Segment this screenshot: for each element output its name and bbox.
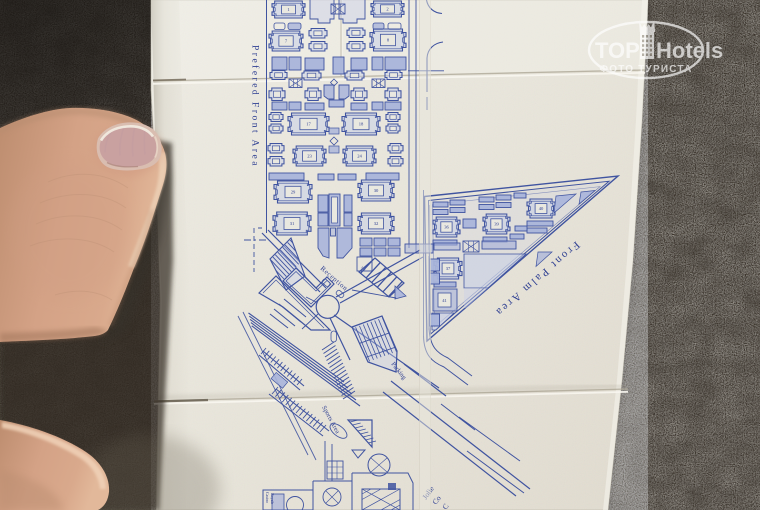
svg-text:37: 37: [446, 266, 451, 271]
svg-text:40: 40: [539, 206, 544, 211]
svg-text:Prefered Front Area: Prefered Front Area: [250, 45, 261, 168]
svg-text:36: 36: [444, 225, 449, 230]
svg-text:18: 18: [359, 122, 364, 127]
svg-text:Hotels: Hotels: [656, 38, 723, 63]
svg-text:39: 39: [494, 222, 499, 227]
svg-text:29: 29: [291, 190, 296, 195]
svg-text:41: 41: [442, 298, 447, 303]
svg-text:31: 31: [290, 221, 295, 226]
svg-text:32: 32: [374, 221, 379, 226]
svg-text:Royale: Royale: [270, 493, 275, 505]
svg-text:TOP: TOP: [595, 38, 640, 63]
svg-text:Casino: Casino: [265, 492, 270, 503]
svg-text:ФОТО ТУРИСТА: ФОТО ТУРИСТА: [600, 64, 693, 75]
svg-text:30: 30: [374, 188, 379, 193]
svg-text:17: 17: [306, 122, 311, 127]
svg-text:23: 23: [307, 154, 312, 159]
svg-text:24: 24: [357, 154, 362, 159]
